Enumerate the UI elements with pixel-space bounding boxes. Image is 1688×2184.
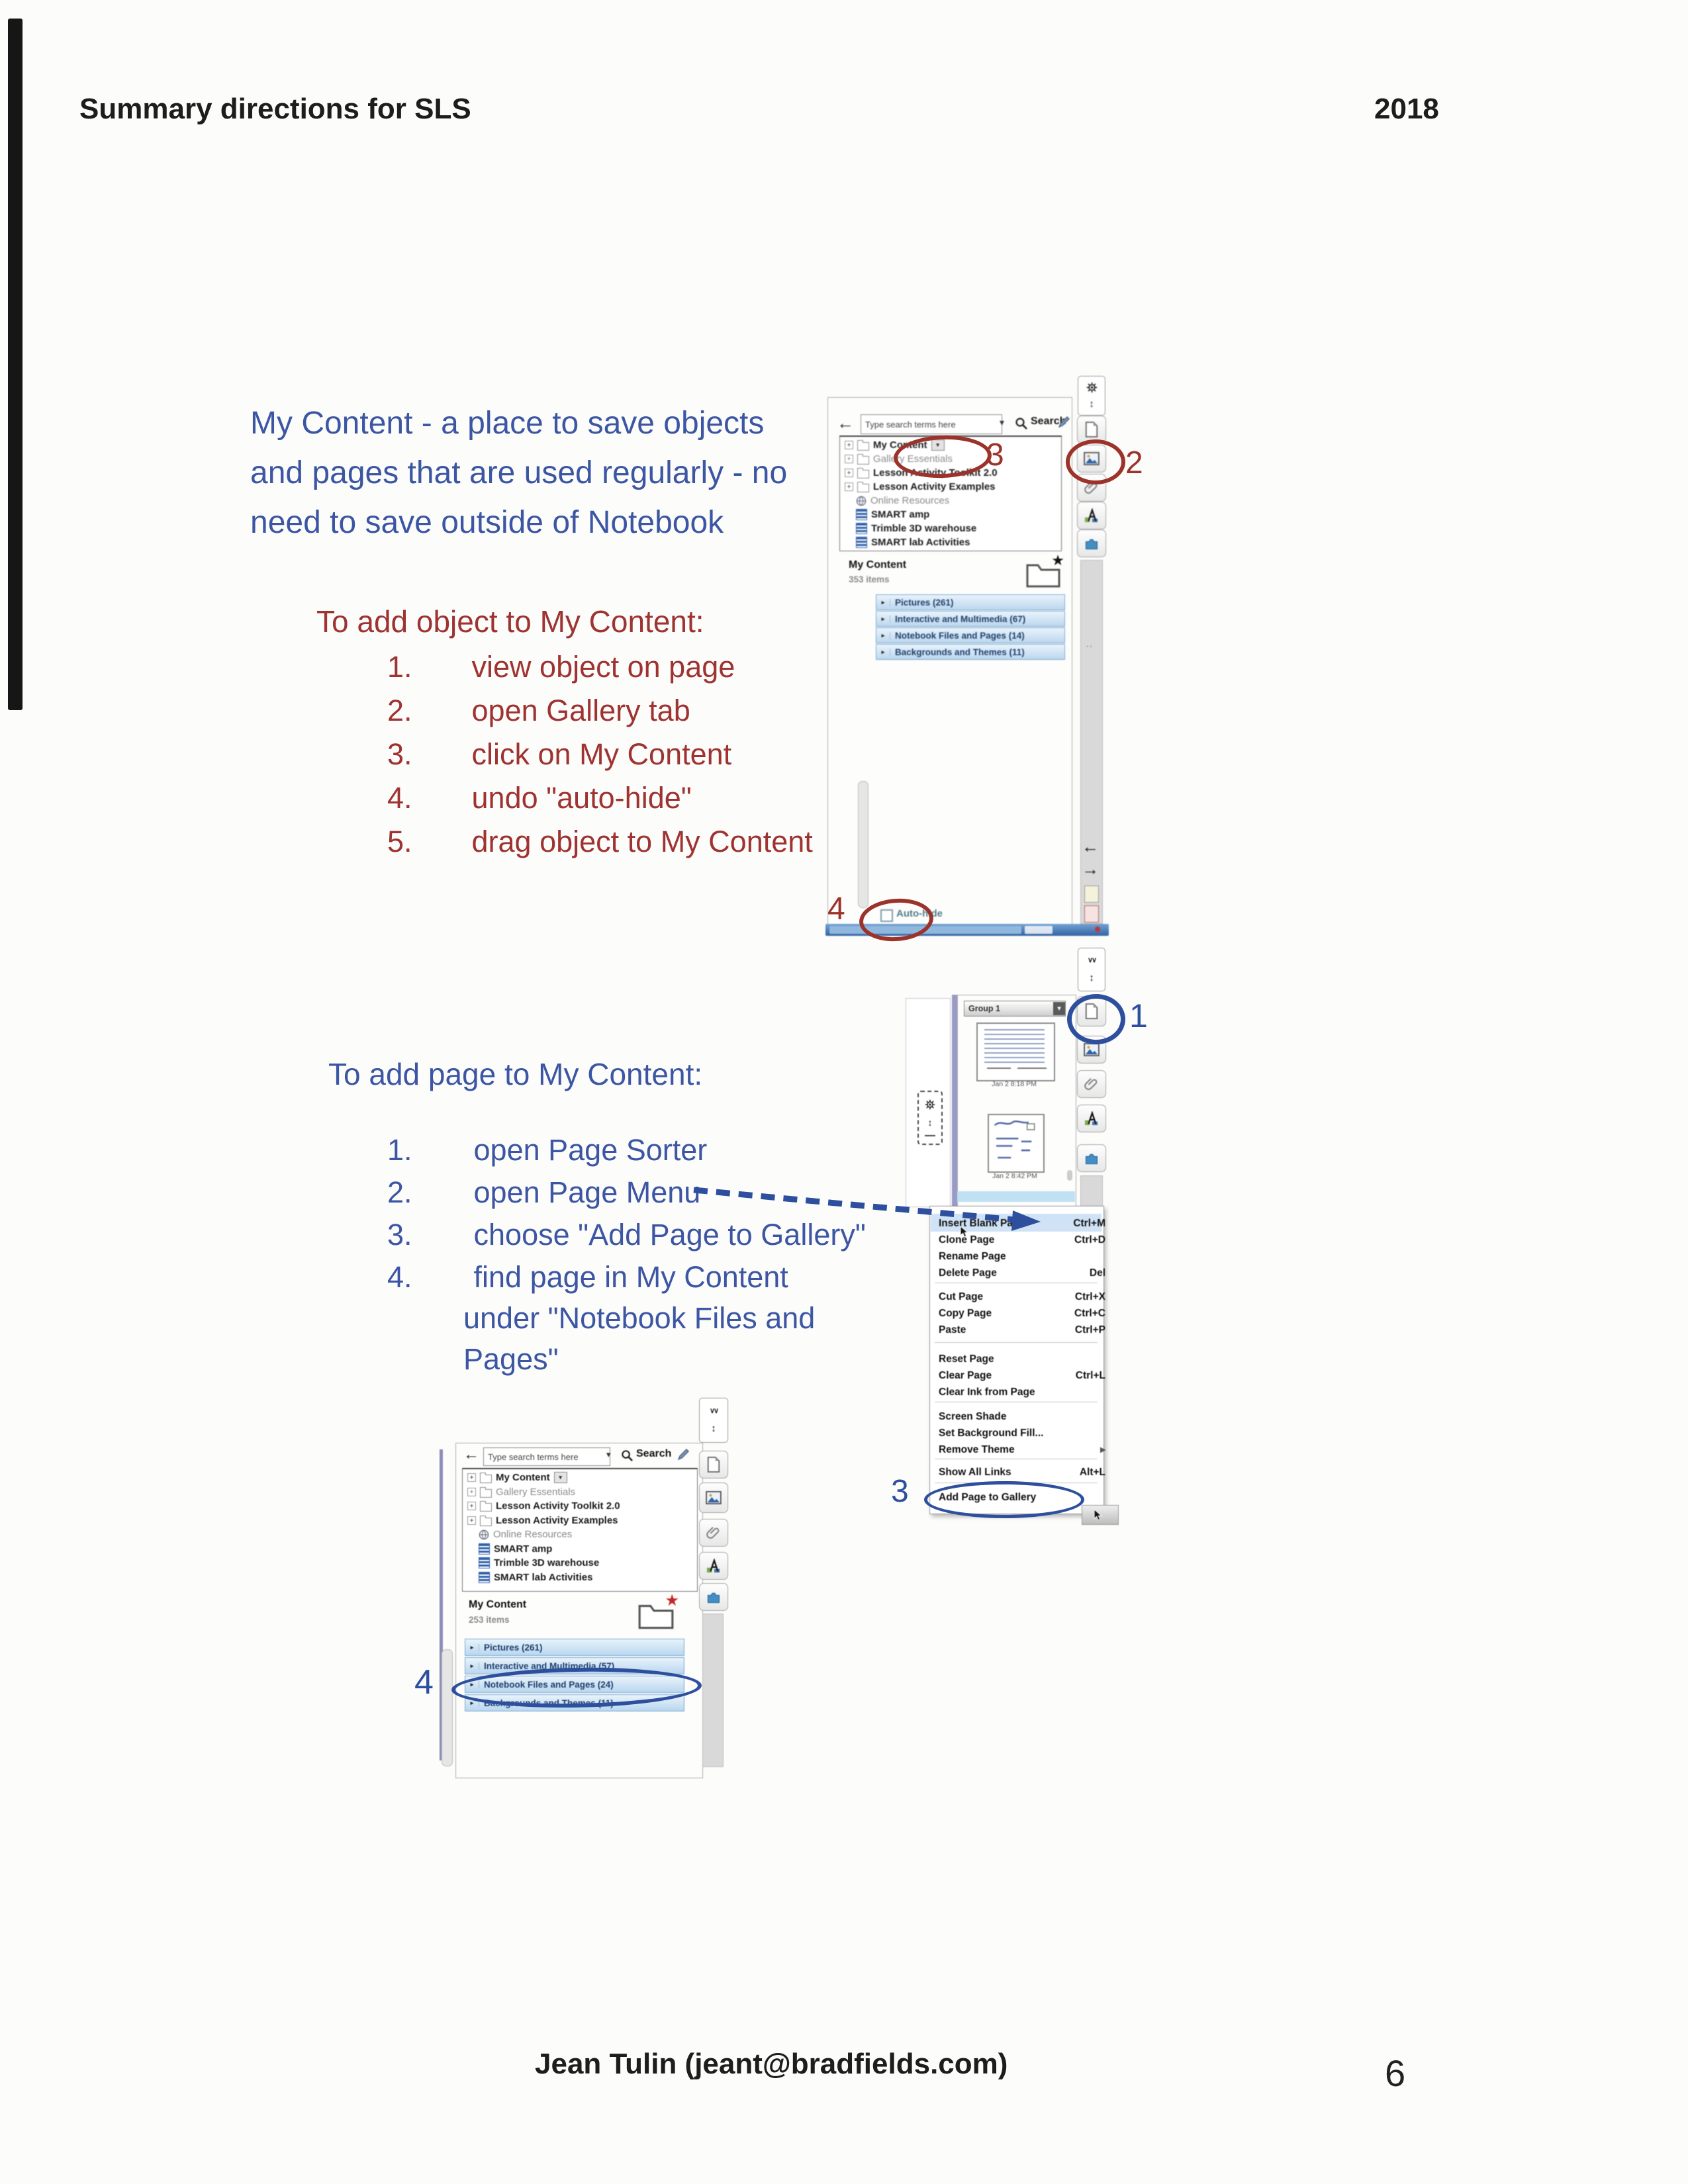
- tree-item-label: SMART amp: [494, 1543, 552, 1555]
- tree-item-label: SMART lab Activities: [494, 1572, 592, 1583]
- tree-item-label: Lesson Activity Toolkit 2.0: [496, 1500, 620, 1512]
- pencil-icon[interactable]: [677, 1447, 691, 1461]
- tree-item-label: Gallery Essentials: [496, 1486, 575, 1498]
- tree-item-label: Lesson Activity Examples: [496, 1515, 618, 1526]
- tab-addons[interactable]: [699, 1583, 728, 1611]
- page-number: 6: [1385, 2052, 1405, 2095]
- footer-author: Jean Tulin (jeant@bradfields.com): [535, 2048, 1008, 2081]
- annotation-number-1: 1: [1129, 997, 1148, 1035]
- tree-item-label: Trimble 3D warehouse: [494, 1557, 599, 1569]
- smart-lab-icon: [479, 1572, 490, 1583]
- smart-amp-icon: [479, 1543, 490, 1555]
- dashed-arrow: [688, 1173, 1059, 1246]
- tab-gallery[interactable]: [699, 1482, 728, 1513]
- annotation-circle-gallery-tab: [1066, 439, 1125, 484]
- back-arrow-icon[interactable]: ←: [463, 1445, 479, 1464]
- folder-icon: [480, 1489, 492, 1498]
- tree-item-trimble[interactable]: Trimble 3D warehouse: [467, 1557, 692, 1569]
- annotation-circle-add-page-to-gallery: [924, 1481, 1084, 1518]
- annotation-number-3: 3: [986, 437, 1004, 473]
- search-button[interactable]: Search: [636, 1448, 671, 1460]
- screenshot-gallery-bottom: ← Type search terms here ▾ Search + My C…: [0, 0, 1688, 2184]
- item-menu-icon[interactable]: ▾: [554, 1472, 567, 1483]
- folder-icon: [480, 1503, 492, 1512]
- panel-collapse-controls: ∨∨ ↕: [699, 1398, 728, 1443]
- annotation-number-4: 4: [827, 891, 845, 927]
- star-icon: ★: [665, 1591, 679, 1610]
- tab-page-sorter[interactable]: [699, 1451, 728, 1479]
- collapsed-strip: [702, 1614, 724, 1767]
- trimble-icon: [479, 1557, 490, 1569]
- folder-star-icon: ★: [637, 1598, 675, 1631]
- tree-item-smart-lab[interactable]: SMART lab Activities: [467, 1572, 692, 1583]
- annotation-number-4-category: 4: [414, 1662, 434, 1702]
- expand-icon[interactable]: +: [467, 1473, 476, 1482]
- tree-item-lesson-examples[interactable]: + Lesson Activity Examples: [467, 1515, 692, 1526]
- expand-arrow-icon[interactable]: ▸: [465, 1644, 479, 1651]
- expand-arrow-icon[interactable]: ▸: [465, 1662, 479, 1670]
- folder-icon: [480, 1518, 492, 1526]
- tree-item-smart-amp[interactable]: SMART amp: [467, 1543, 692, 1555]
- annotation-number-3-menu: 3: [891, 1473, 909, 1510]
- folder-icon: [480, 1475, 492, 1483]
- search-icon: [621, 1449, 633, 1462]
- picture-icon: [706, 1491, 722, 1504]
- expand-icon[interactable]: +: [467, 1502, 476, 1510]
- panel-scrollbar[interactable]: [442, 1649, 453, 1766]
- tab-properties[interactable]: [699, 1552, 728, 1580]
- my-content-count: 253 items: [469, 1615, 510, 1625]
- category-pictures[interactable]: ▸ Pictures (261): [465, 1639, 684, 1656]
- tab-attachments[interactable]: [699, 1519, 728, 1547]
- tree-item-online-resources[interactable]: Online Resources: [467, 1529, 692, 1540]
- tree-item-label: My Content: [496, 1472, 550, 1483]
- tree-item-gallery-essentials[interactable]: + Gallery Essentials: [467, 1486, 692, 1498]
- search-placeholder: Type search terms here: [488, 1452, 579, 1462]
- search-input[interactable]: Type search terms here: [483, 1447, 610, 1466]
- addons-icon: [706, 1590, 721, 1604]
- properties-a-icon: [706, 1559, 721, 1573]
- page-icon: [706, 1456, 721, 1473]
- tree-item-my-content[interactable]: + My Content ▾: [467, 1472, 692, 1483]
- globe-icon: [479, 1529, 489, 1540]
- search-dropdown-icon[interactable]: ▾: [606, 1449, 611, 1460]
- annotation-circle-page-sorter: [1067, 994, 1125, 1044]
- collapse-icon[interactable]: ∨∨: [710, 1406, 718, 1415]
- tree-item-lesson-toolkit[interactable]: + Lesson Activity Toolkit 2.0: [467, 1500, 692, 1512]
- tree-item-label: Online Resources: [493, 1529, 572, 1540]
- expand-icon[interactable]: +: [467, 1516, 476, 1525]
- resize-icon[interactable]: ↕: [711, 1423, 716, 1434]
- paperclip-icon: [706, 1525, 721, 1540]
- my-content-title: My Content: [469, 1599, 526, 1611]
- category-label: Pictures (261): [479, 1643, 543, 1653]
- annotation-number-2: 2: [1125, 445, 1143, 481]
- expand-icon[interactable]: +: [467, 1488, 476, 1496]
